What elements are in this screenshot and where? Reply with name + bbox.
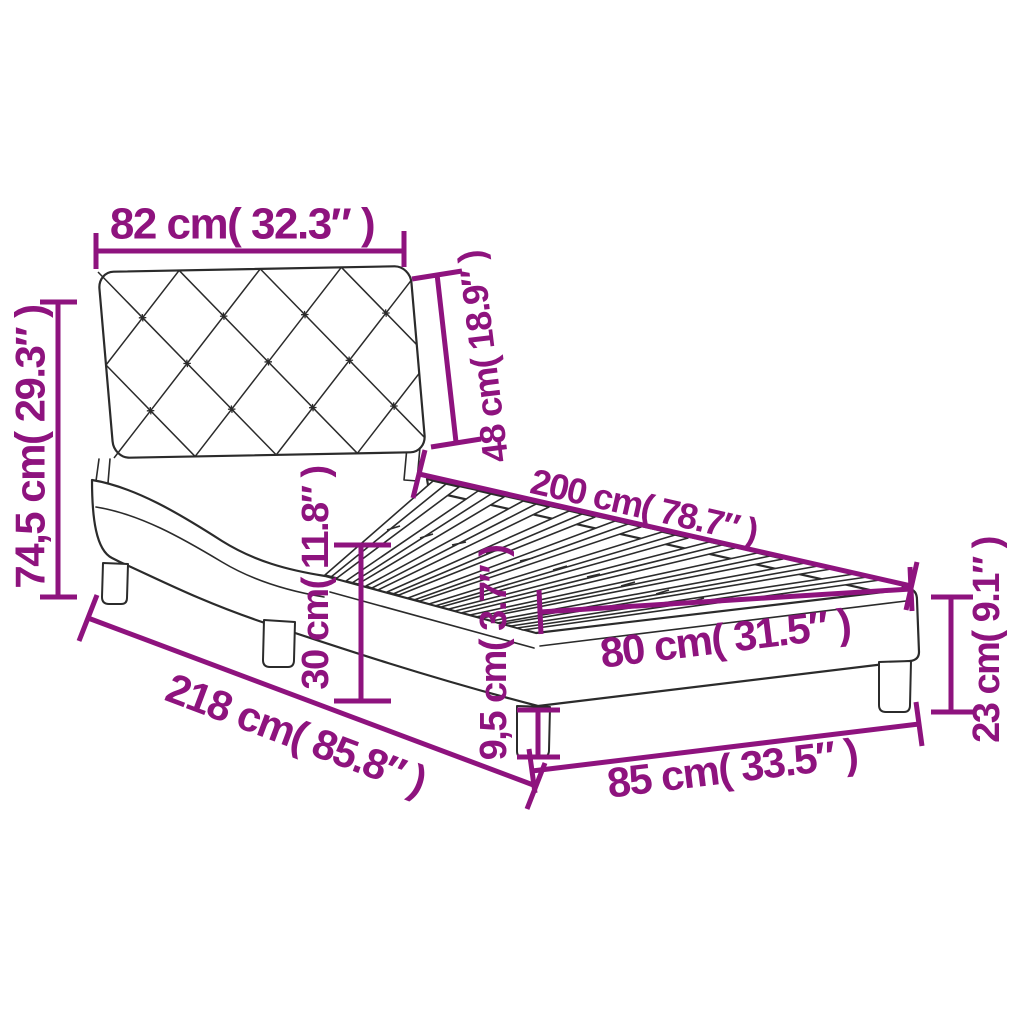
headboard — [98, 266, 426, 458]
product-dimension-diagram: 82 cm( 32.3″ ) 48 cm( 18.9″ ) 74,5 cm( 2… — [0, 0, 1024, 1024]
dimension-label-frame-height: 23 cm( 9.1″ ) — [966, 537, 1008, 743]
dimension-label-platform-height: 30 cm( 11.8″ ) — [295, 466, 337, 689]
dimension-headboard-width: 82 cm( 32.3″ ) — [96, 200, 404, 270]
dimension-label-leg-height: 9,5 cm( 3.7″ ) — [473, 546, 515, 761]
leg — [879, 661, 911, 712]
leg — [102, 563, 128, 604]
dimension-label-headboard-width: 82 cm( 32.3″ ) — [110, 200, 374, 249]
leg — [517, 706, 550, 758]
dimension-frame-height: 23 cm( 9.1″ ) — [931, 537, 1008, 743]
dimension-label-total-height: 74,5 cm( 29.3″ ) — [7, 305, 54, 588]
bed-frame-diagram: 82 cm( 32.3″ ) 48 cm( 18.9″ ) 74,5 cm( 2… — [0, 0, 1024, 1024]
dimension-total-width: 85 cm( 33.5″ ) — [529, 702, 922, 807]
dimension-headboard-height: 48 cm( 18.9″ ) — [412, 249, 516, 465]
dimension-total-height: 74,5 cm( 29.3″ ) — [7, 302, 78, 597]
dimension-label-headboard-height: 48 cm( 18.9″ ) — [450, 249, 517, 465]
leg — [263, 620, 295, 667]
dimension-label-total-width: 85 cm( 33.5″ ) — [604, 729, 859, 806]
